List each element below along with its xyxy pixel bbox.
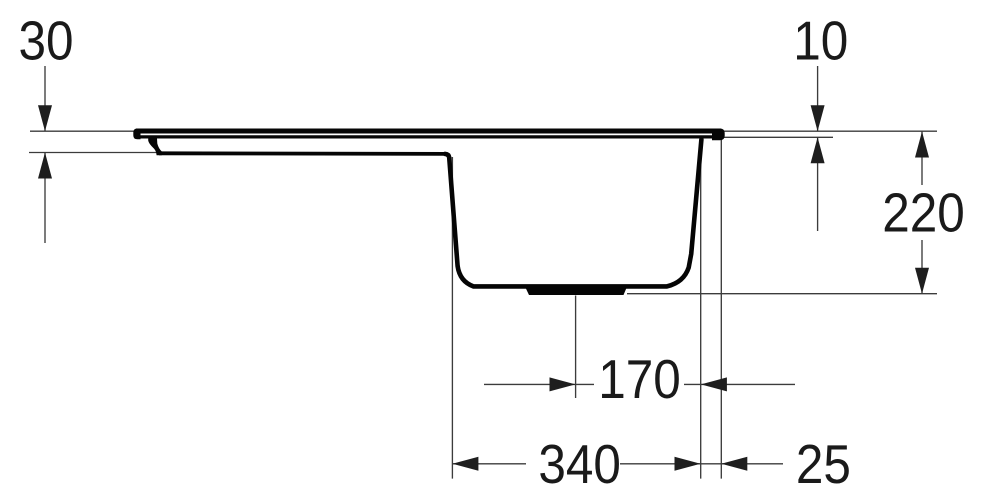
svg-text:340: 340 <box>538 435 621 496</box>
svg-text:25: 25 <box>796 435 851 496</box>
svg-text:220: 220 <box>882 183 965 244</box>
svg-text:10: 10 <box>793 11 848 72</box>
svg-text:30: 30 <box>18 11 73 72</box>
svg-text:170: 170 <box>598 349 681 410</box>
